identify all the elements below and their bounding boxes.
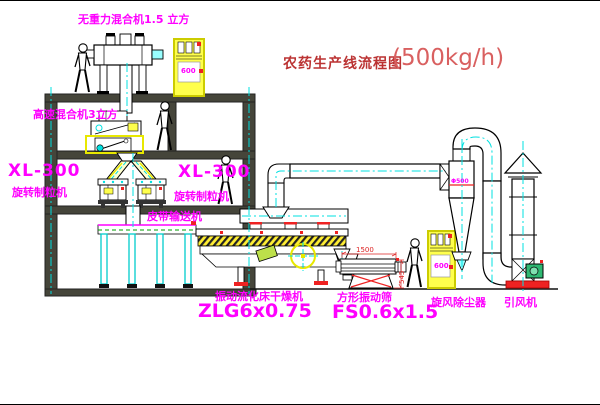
label-granulator-model-left: XL-300 [8, 163, 80, 180]
cabinet-display-2: 600 [434, 262, 449, 270]
fluid-bed-dryer [196, 229, 358, 286]
label-fan: 引风机 [504, 297, 537, 308]
label-belt-conveyor: 皮带输送机 [147, 211, 202, 222]
diagram-title: 农药生产线流程图 [283, 53, 403, 73]
vibrating-screen [334, 249, 406, 288]
diagram-capacity: (500kg/h) [392, 45, 504, 71]
label-top-mixer: 无重力混合机1.5 立方 [78, 14, 189, 25]
belt-conveyor [98, 221, 196, 288]
exhaust-duct [240, 164, 440, 231]
dim-screen-height: 545 [398, 271, 406, 284]
granulator-left [98, 179, 128, 208]
control-cabinet-2 [428, 231, 455, 288]
label-screen-model: FS0.6x1.5 [332, 303, 438, 322]
label-granulator-name-left: 旋转制粒机 [12, 187, 67, 198]
worker-figure [407, 239, 422, 287]
granulator-right [136, 179, 166, 208]
cyclone-diameter: Φ500 [451, 178, 469, 185]
label-granulator-model-right: XL-300 [178, 164, 250, 181]
label-high-speed-mixer: 高速混合机3立方 [33, 109, 118, 120]
label-dryer-model: ZLG6x0.75 [198, 302, 312, 321]
label-cyclone: 旋风除尘器 [431, 297, 486, 308]
cabinet-display-1: 600 [181, 67, 196, 75]
label-granulator-name-right: 旋转制粒机 [174, 191, 229, 202]
dim-screen-length: 1500 [356, 246, 374, 254]
cad-canvas: 农药生产线流程图 (500kg/h) 无重力混合机1.5 立方 高速混合机3立方… [0, 0, 600, 405]
